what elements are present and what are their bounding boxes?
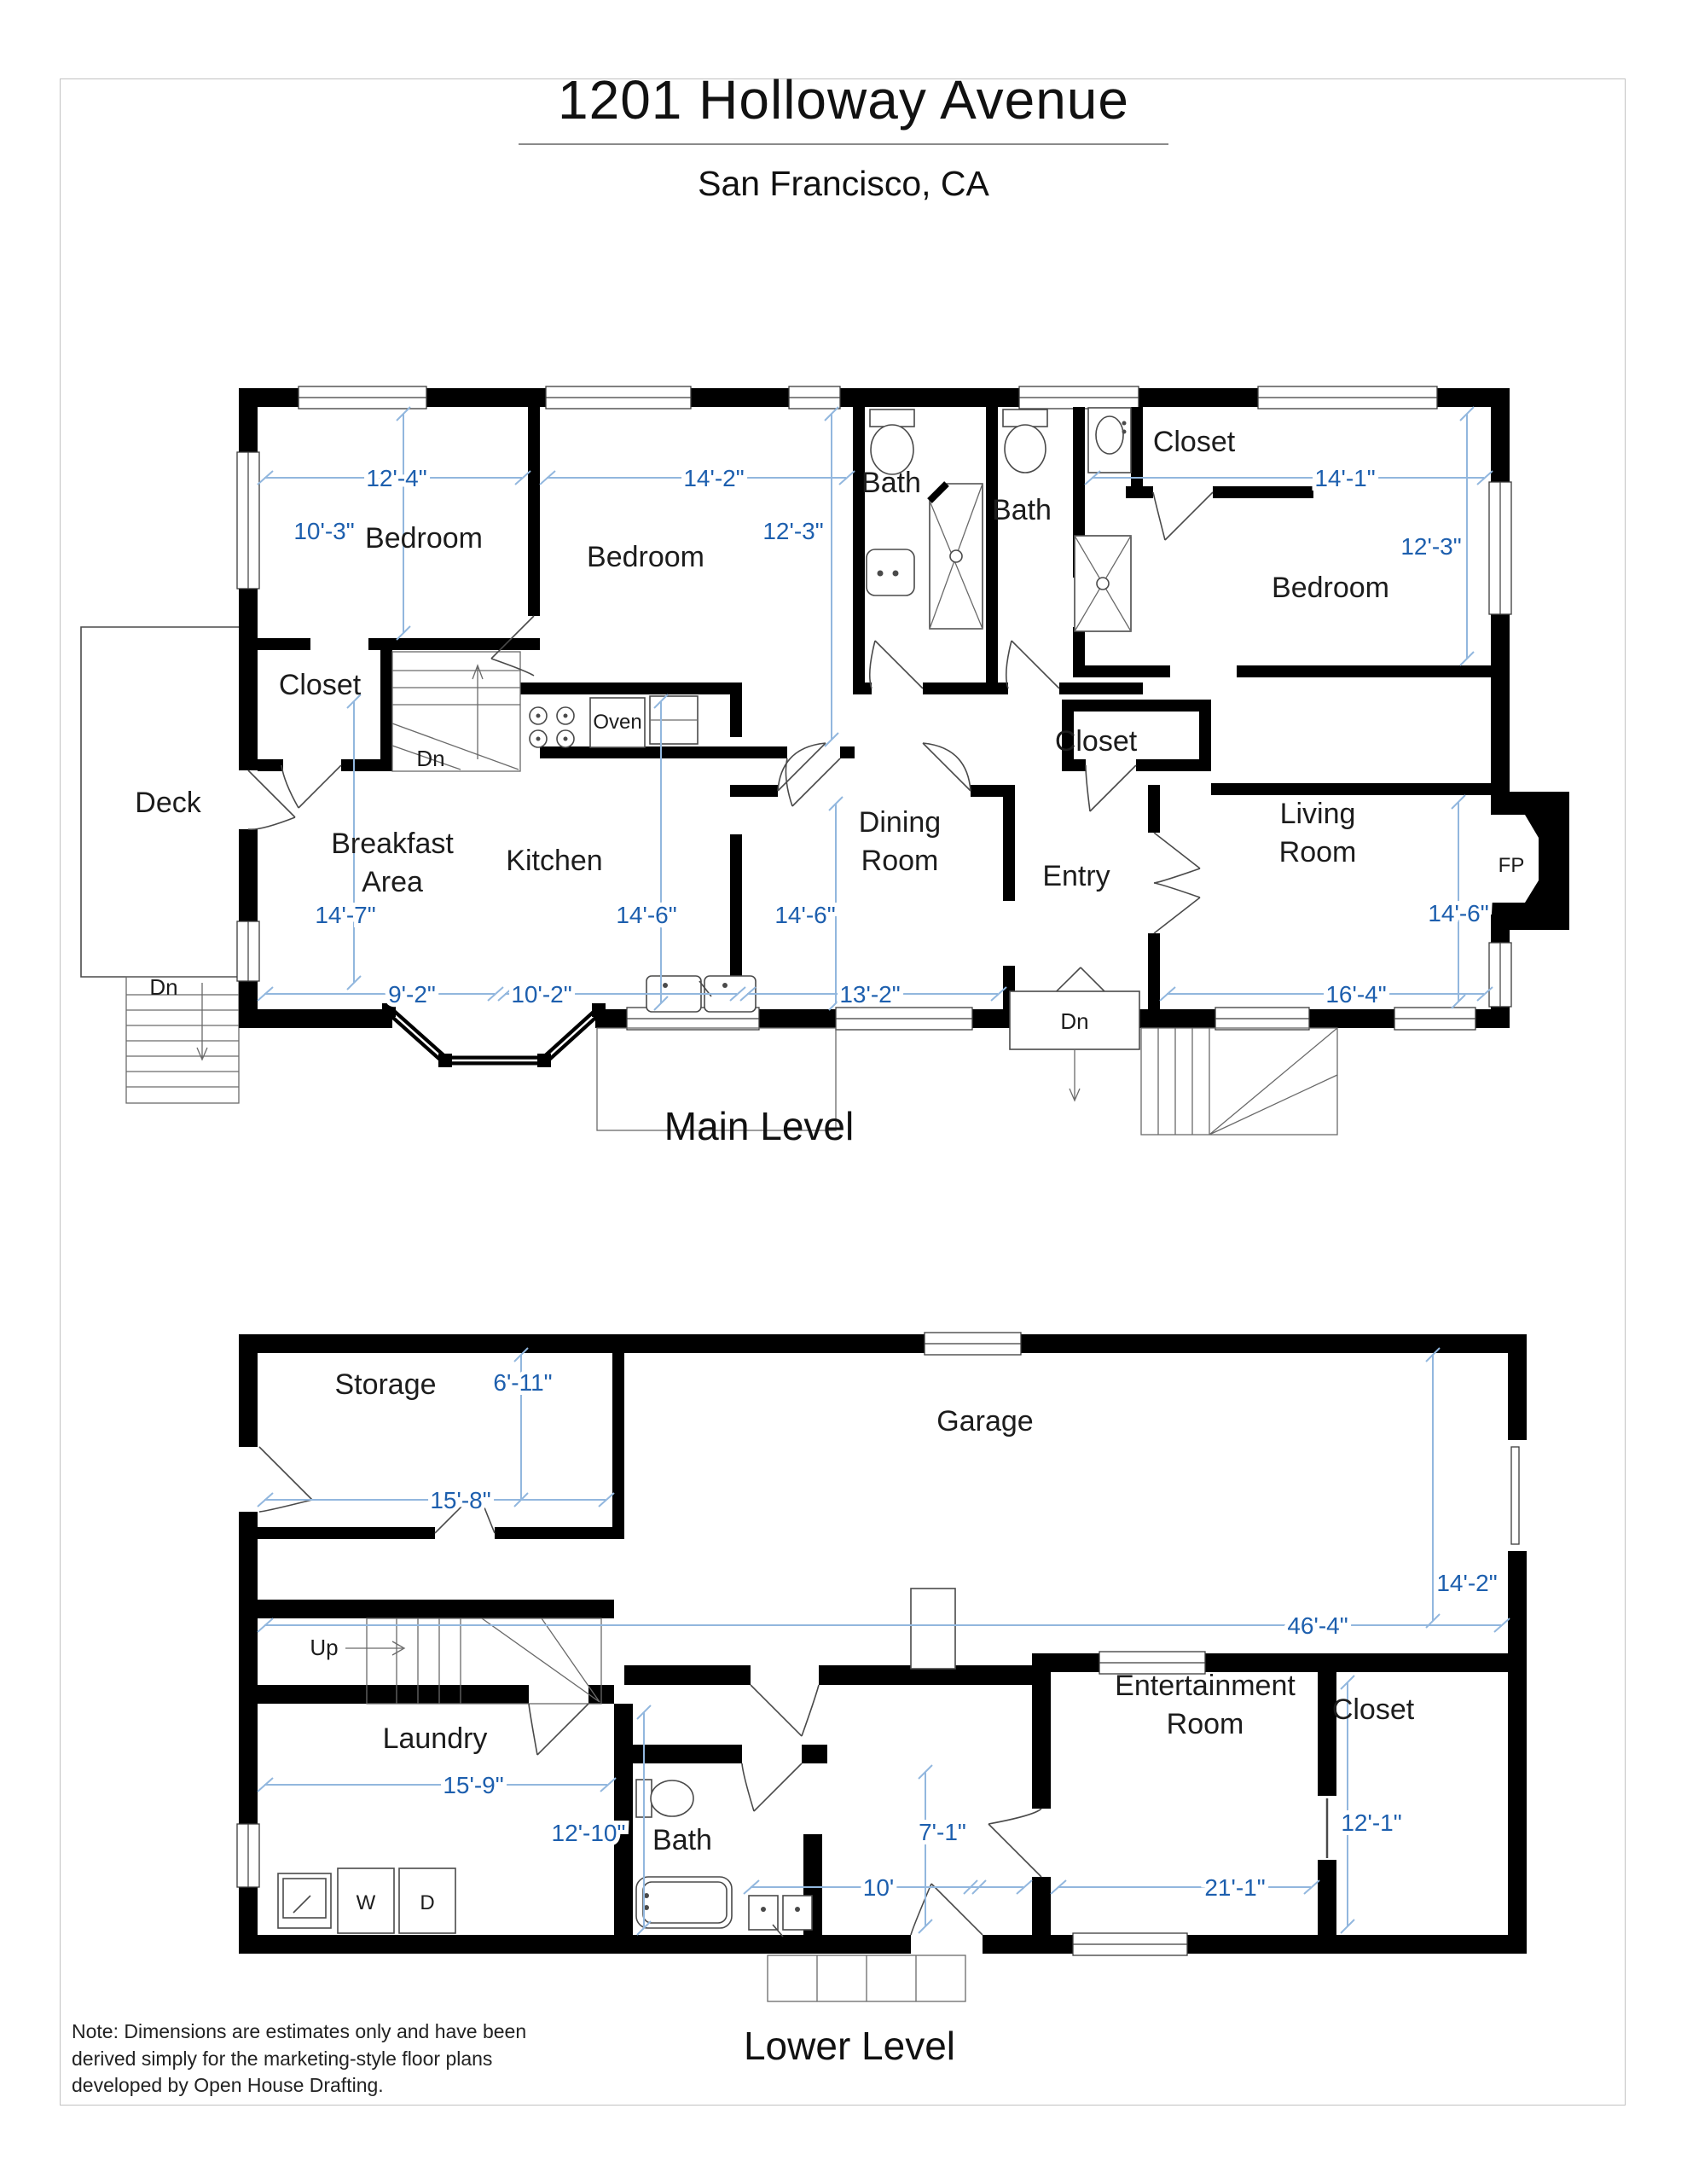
dryer-label: D [420,1891,434,1914]
lower-bath-label: Bath [652,1824,712,1856]
sink-right [783,1896,812,1930]
storage-label: Storage [334,1368,436,1401]
toilet-bowl [651,1780,693,1816]
lower-bath-fixtures [636,1780,812,1937]
dining-width-dim: 13'-2" [839,981,900,1008]
entry-label: Entry [1042,860,1110,892]
bedroom3-depth-dim: 12'-3" [1400,533,1461,560]
oven-label: Oven [593,711,641,734]
sink [867,549,914,595]
bath-depth-dim: 7'-1" [919,1819,966,1845]
entertainment-depth-dim: 12'-1" [1341,1809,1401,1836]
bath1-fixtures [867,409,983,629]
lower-closet-label: Closet [1332,1693,1415,1726]
laundry-depth-dim: 12'-10" [552,1820,626,1846]
breakfast-bay-window [382,1003,606,1067]
storage-depth-dim: 6'-11" [493,1369,552,1396]
toilet-bowl [1005,425,1046,473]
main-hall-stairs [392,652,520,771]
main-labels: Bedroom Bedroom Bedroom Bath Bath Closet… [135,426,1524,1034]
bedroom1-label: Bedroom [365,522,483,555]
deck-stairs-dn-label: Dn [149,974,177,1000]
closet-hall-label: Closet [279,669,362,701]
page-title: 1201 Holloway Avenue [519,68,1168,145]
lower-dimension-lines [258,1348,1510,1935]
closet-entry-label: Closet [1055,725,1138,758]
main-interior-walls [258,407,1491,1021]
garage-label: Garage [936,1405,1033,1438]
bedroom2-label: Bedroom [587,541,704,573]
toilet-tank [870,409,914,427]
floorplan-main-level: Bedroom Bedroom Bedroom Bath Bath Closet… [68,384,1595,1152]
hall-stairs-dn-label: Dn [416,746,444,771]
dining-depth-dim: 14'-6" [774,902,835,928]
laundry-width-dim: 15'-9" [443,1772,503,1798]
storage-width-dim: 15'-8" [430,1487,490,1513]
breakfast-label-line1: Breakfast [331,828,454,860]
bath-width-dim: 10' [863,1874,895,1901]
bedroom3-width-dim: 14'-1" [1314,465,1375,491]
title-block: 1201 Holloway Avenue San Francisco, CA [519,68,1168,204]
kitchen-label: Kitchen [506,845,602,877]
front-stairs-dn-label: Dn [1060,1008,1088,1034]
garage-post [911,1589,955,1669]
breakfast-label-line2: Area [362,866,423,898]
floorplan-lower-level: Storage Garage Laundry Bath Entertainmen… [68,1297,1595,2065]
entertainment-width-dim: 21'-1" [1204,1874,1265,1901]
disclaimer-note: Note: Dimensions are estimates only and … [72,2018,532,2100]
garage-width-dim: 46'-4" [1287,1612,1348,1639]
stairs-up-arrow-icon [345,1641,404,1655]
bedroom2-depth-dim: 12'-3" [762,518,823,544]
washer-label: W [357,1891,376,1914]
breakfast-depth-dim: 14'-7" [315,902,375,928]
bath1-label: Bath [861,467,921,499]
bedroom2-width-dim: 14'-2" [683,465,744,491]
kitchen-width-dim: 10'-2" [511,981,571,1008]
entertainment-label-line2: Room [1167,1708,1244,1740]
bedroom3-label: Bedroom [1272,572,1389,604]
back-steps [768,1955,965,2001]
living-label-line1: Living [1280,798,1356,830]
dining-label-line2: Room [861,845,939,877]
entertainment-label-line1: Entertainment [1115,1670,1296,1702]
kitchen-depth-dim: 14'-6" [616,902,676,928]
garage-depth-dim: 14'-2" [1436,1570,1497,1596]
page-subtitle: San Francisco, CA [519,164,1168,204]
bedroom1-depth-dim: 10'-3" [293,518,354,544]
bath2-label: Bath [992,494,1052,526]
stairs-up-label: Up [310,1635,338,1660]
front-down-arrow-icon [1070,1049,1080,1101]
living-depth-dim: 14'-6" [1428,900,1488,926]
dining-label-line1: Dining [859,806,941,839]
closet-top-label: Closet [1153,426,1236,458]
bedroom1-width-dim: 12'-4" [366,465,426,491]
living-label-line2: Room [1279,836,1357,868]
lower-interior-walls [258,1353,1508,1954]
main-level-title: Main Level [664,1103,854,1149]
lower-dimension-texts: 6'-11" 15'-8" 14'-2" 46'-4" 15'-9" 12'-1… [430,1369,1497,1901]
lower-level-title: Lower Level [744,2023,955,2069]
living-width-dim: 16'-4" [1325,981,1386,1008]
deck-label: Deck [135,787,201,819]
laundry-label: Laundry [383,1722,488,1755]
fireplace-label: FP [1499,854,1525,877]
lower-labels: Storage Garage Laundry Bath Entertainmen… [310,1368,1414,1914]
deck-structure [81,627,239,1103]
breakfast-width-dim: 9'-2" [388,981,436,1008]
stairs-down-arrow-icon [472,665,483,759]
toilet-tank [1003,409,1047,427]
